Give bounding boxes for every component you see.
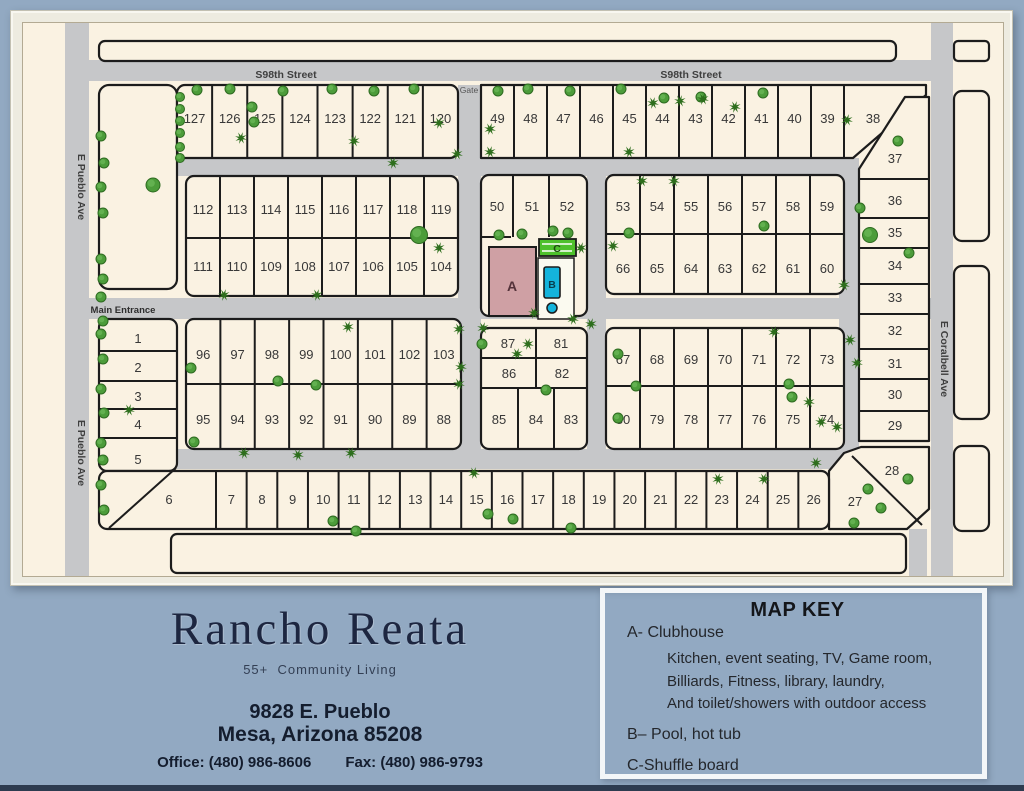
lot-106: 106 <box>362 259 384 274</box>
lot-127: 127 <box>184 111 206 126</box>
tree-bush-highlight <box>614 350 619 355</box>
tree-bush-highlight <box>148 180 155 187</box>
lot-117: 117 <box>363 202 384 217</box>
lot-60: 60 <box>820 261 834 276</box>
tree-bush-highlight <box>97 183 102 188</box>
lot-23: 23 <box>714 492 728 507</box>
lot-46: 46 <box>589 111 603 126</box>
lot-9: 9 <box>289 492 296 507</box>
tree-bush-highlight <box>478 340 483 345</box>
lot-96: 96 <box>196 347 210 362</box>
lot-108: 108 <box>294 259 316 274</box>
tree-bush-highlight <box>97 439 102 444</box>
lot-70: 70 <box>718 352 732 367</box>
tree-bush-highlight <box>614 414 619 419</box>
lot-16: 16 <box>500 492 514 507</box>
lot-40: 40 <box>787 111 801 126</box>
branding-block: Rancho Reata 55+ Community Living 9828 E… <box>60 602 580 771</box>
lot-14: 14 <box>439 492 453 507</box>
lot-88: 88 <box>437 412 451 427</box>
tree-bush-highlight <box>312 381 317 386</box>
lot-111: 111 <box>193 259 213 274</box>
lot-63: 63 <box>718 261 732 276</box>
tree-bush-highlight <box>567 524 572 529</box>
tree-bush-highlight <box>176 154 181 159</box>
tree-bush-highlight <box>97 385 102 390</box>
tree-bush-highlight <box>176 143 181 148</box>
tree-bush-highlight <box>518 230 523 235</box>
tree-bush-highlight <box>328 85 333 90</box>
lot-22: 22 <box>684 492 698 507</box>
lot-103: 103 <box>433 347 455 362</box>
tree-bush-highlight <box>352 527 357 532</box>
lot-73: 73 <box>820 352 834 367</box>
map-key-title: MAP KEY <box>627 599 968 622</box>
tree-bush-highlight <box>97 481 102 486</box>
tree-bush-highlight <box>850 519 855 524</box>
tree-bush-highlight <box>193 86 198 91</box>
tree-bush-highlight <box>370 87 375 92</box>
block-east-2 <box>954 266 989 419</box>
community-map-svg: 1271261251241231221211201121131141151161… <box>23 23 1003 576</box>
lot-21: 21 <box>653 492 667 507</box>
lot-43: 43 <box>688 111 702 126</box>
street-label-main-entrance: Main Entrance <box>91 305 156 316</box>
lot-5: 5 <box>134 452 141 467</box>
key-clubhouse-detail-line: And toilet/showers with outdoor access <box>667 693 968 716</box>
lot-3: 3 <box>134 389 141 404</box>
tree-bush-highlight <box>509 515 514 520</box>
tree-bush-highlight <box>495 231 500 236</box>
lot-98: 98 <box>265 347 279 362</box>
tree-bush-highlight <box>904 475 909 480</box>
lot-59: 59 <box>820 199 834 214</box>
block-northwest-green <box>99 85 177 289</box>
lot-118: 118 <box>397 202 418 217</box>
tree-bush-highlight <box>660 94 665 99</box>
office-phone: Office: (480) 986-8606 <box>157 754 311 771</box>
street-label-s98th-west: S98th Street <box>255 69 317 81</box>
lot-49: 49 <box>490 111 504 126</box>
clubhouse-label: A <box>507 278 517 294</box>
road-s98th-street <box>65 60 953 81</box>
lot-61: 61 <box>786 261 800 276</box>
road-ring-north <box>177 158 859 176</box>
tree-bush-highlight <box>856 204 861 209</box>
block-east-1 <box>954 91 989 241</box>
street-label-gate: Gate <box>460 85 479 95</box>
page: 1271261251241231221211201121131141151161… <box>0 0 1024 791</box>
lot-44: 44 <box>655 111 669 126</box>
key-item-pool: B– Pool, hot tub <box>627 726 968 744</box>
key-clubhouse-detail-line: Kitchen, event seating, TV, Game room, <box>667 648 968 671</box>
lot-18: 18 <box>561 492 575 507</box>
lot-30: 30 <box>888 387 902 402</box>
lot-84: 84 <box>529 412 543 427</box>
lot-78: 78 <box>684 412 698 427</box>
tree-bush-highlight <box>864 485 869 490</box>
lot-79: 79 <box>650 412 664 427</box>
tree-bush-highlight <box>905 249 910 254</box>
tree-bush-highlight <box>760 222 765 227</box>
lot-94: 94 <box>230 412 244 427</box>
lot-89: 89 <box>402 412 416 427</box>
shuffleboard-label: C <box>553 243 561 255</box>
block-north-strip-east <box>954 41 989 61</box>
lot-55: 55 <box>684 199 698 214</box>
block-67-80 <box>606 328 844 449</box>
hot-tub <box>547 303 557 313</box>
lot-69: 69 <box>684 352 698 367</box>
lot-20: 20 <box>623 492 637 507</box>
tree-bush-highlight <box>484 510 489 515</box>
tree-bush-highlight <box>176 129 181 134</box>
lot-119: 119 <box>431 202 452 217</box>
tree-bush-highlight <box>226 85 231 90</box>
street-label-coralbell: E Coralbell Ave <box>938 321 950 397</box>
lot-93: 93 <box>265 412 279 427</box>
tree-bush-highlight <box>632 382 637 387</box>
lot-7: 7 <box>228 492 235 507</box>
lot-77: 77 <box>718 412 732 427</box>
lot-28: 28 <box>885 463 899 478</box>
tree-bush-highlight <box>100 409 105 414</box>
community-subtitle: 55+ Community Living <box>60 662 580 677</box>
lot-27: 27 <box>848 494 862 509</box>
lot-45: 45 <box>622 111 636 126</box>
lot-115: 115 <box>295 202 316 217</box>
tree-bush-highlight <box>494 87 499 92</box>
lot-85: 85 <box>492 412 506 427</box>
lot-124: 124 <box>289 111 311 126</box>
tree-bush-highlight <box>97 255 102 260</box>
map-frame: 1271261251241231221211201121131141151161… <box>10 10 1013 586</box>
contact-line: Office: (480) 986-8606 Fax: (480) 986-97… <box>60 754 580 771</box>
tree-bush-highlight <box>99 317 104 322</box>
lot-33: 33 <box>888 290 902 305</box>
lot-38: 38 <box>866 111 880 126</box>
lot-53: 53 <box>616 199 630 214</box>
tree-bush-highlight <box>524 85 529 90</box>
lot-81: 81 <box>554 336 568 351</box>
lot-25: 25 <box>776 492 790 507</box>
tree-bush-highlight <box>97 293 102 298</box>
lot-8: 8 <box>258 492 265 507</box>
key-clubhouse-detail-line: Billiards, Fitness, library, laundry, <box>667 671 968 694</box>
tree-bush-highlight <box>864 229 872 237</box>
lot-24: 24 <box>745 492 759 507</box>
lot-17: 17 <box>531 492 545 507</box>
tree-bush-highlight <box>97 132 102 137</box>
lot-86: 86 <box>502 366 516 381</box>
lot-71: 71 <box>752 352 766 367</box>
road-center <box>587 158 606 469</box>
tree-bush-highlight <box>788 393 793 398</box>
lot-64: 64 <box>684 261 698 276</box>
lot-58: 58 <box>786 199 800 214</box>
lot-126: 126 <box>219 111 241 126</box>
lot-39: 39 <box>820 111 834 126</box>
street-label-s98th-east: S98th Street <box>660 69 722 81</box>
lot-66: 66 <box>616 261 630 276</box>
tree-bush-highlight <box>99 275 104 280</box>
lot-114: 114 <box>261 202 282 217</box>
lot-35: 35 <box>888 225 902 240</box>
lot-100: 100 <box>330 347 352 362</box>
tree-bush-highlight <box>759 89 764 94</box>
lot-57: 57 <box>752 199 766 214</box>
tree-bush-highlight <box>785 380 790 385</box>
lot-83: 83 <box>564 412 578 427</box>
lot-92: 92 <box>299 412 313 427</box>
lot-34: 34 <box>888 258 902 273</box>
lot-48: 48 <box>523 111 537 126</box>
lot-4: 4 <box>134 417 141 432</box>
tree-bush-highlight <box>877 504 882 509</box>
lot-101: 101 <box>364 347 386 362</box>
community-map: 1271261251241231221211201121131141151161… <box>22 22 1004 577</box>
lot-36: 36 <box>888 193 902 208</box>
lot-109: 109 <box>260 259 282 274</box>
tree-bush-highlight <box>279 87 284 92</box>
block-south-strip <box>171 534 906 573</box>
lot-72: 72 <box>786 352 800 367</box>
road-south-stub <box>909 529 927 576</box>
tree-bush-highlight <box>99 209 104 214</box>
road-coralbell-ave <box>931 23 953 576</box>
key-clubhouse-details: Kitchen, event seating, TV, Game room, B… <box>667 648 968 716</box>
tree-bush-highlight <box>190 438 195 443</box>
lot-116: 116 <box>329 202 350 217</box>
pool-label: B <box>548 279 556 291</box>
lot-31: 31 <box>888 356 902 371</box>
tree-bush-highlight <box>564 229 569 234</box>
lot-12: 12 <box>377 492 391 507</box>
lot-54: 54 <box>650 199 664 214</box>
lot-102: 102 <box>399 347 421 362</box>
lot-15: 15 <box>469 492 483 507</box>
lot-95: 95 <box>196 412 210 427</box>
lot-32: 32 <box>888 323 902 338</box>
lot-87: 87 <box>501 336 515 351</box>
fax-phone: Fax: (480) 986-9793 <box>345 754 483 771</box>
tree-bush-highlight <box>329 517 334 522</box>
lot-121: 121 <box>394 111 416 126</box>
tree-bush-highlight <box>410 85 415 90</box>
lot-123: 123 <box>324 111 346 126</box>
lot-37: 37 <box>888 151 902 166</box>
lot-65: 65 <box>650 261 664 276</box>
lot-122: 122 <box>359 111 381 126</box>
tree-bush-highlight <box>274 377 279 382</box>
lot-56: 56 <box>718 199 732 214</box>
lot-68: 68 <box>650 352 664 367</box>
tree-bush-highlight <box>100 159 105 164</box>
tree-bush-highlight <box>99 355 104 360</box>
lot-105: 105 <box>396 259 418 274</box>
lot-110: 110 <box>227 259 248 274</box>
lot-29: 29 <box>888 418 902 433</box>
key-item-shuffleboard: C-Shuffle board <box>627 757 968 775</box>
lot-50: 50 <box>490 199 504 214</box>
tree-bush-highlight <box>187 364 192 369</box>
address-line1: 9828 E. Pueblo <box>60 701 580 723</box>
lot-41: 41 <box>754 111 768 126</box>
tree-bush-highlight <box>412 228 421 237</box>
lot-112: 112 <box>193 202 214 217</box>
street-label-pueblo-south: E Pueblo Ave <box>75 420 87 486</box>
lot-10: 10 <box>316 492 330 507</box>
lot-90: 90 <box>368 412 382 427</box>
address-line2: Mesa, Arizona 85208 <box>60 723 580 747</box>
tree-bush-highlight <box>617 85 622 90</box>
lot-75: 75 <box>786 412 800 427</box>
lot-99: 99 <box>299 347 313 362</box>
lot-51: 51 <box>525 199 539 214</box>
tree-bush-highlight <box>248 103 253 108</box>
lot-107: 107 <box>328 259 350 274</box>
tree-bush-highlight <box>894 137 899 142</box>
block-east-3 <box>954 446 989 531</box>
bottom-edge <box>0 785 1024 791</box>
tree-bush-highlight <box>250 118 255 123</box>
street-label-pueblo-north: E Pueblo Ave <box>75 154 87 220</box>
tree-bush-highlight <box>176 93 181 98</box>
tree-bush-highlight <box>566 87 571 92</box>
block-north-strip <box>99 41 896 61</box>
key-item-clubhouse: A- Clubhouse <box>627 624 968 642</box>
map-key: MAP KEY A- Clubhouse Kitchen, event seat… <box>600 588 987 779</box>
lot-62: 62 <box>752 261 766 276</box>
lot-113: 113 <box>227 202 248 217</box>
lot-1: 1 <box>134 331 141 346</box>
lot-76: 76 <box>752 412 766 427</box>
tree-bush-highlight <box>100 506 105 511</box>
tree-bush-highlight <box>549 227 554 232</box>
lot-91: 91 <box>333 412 347 427</box>
lot-97: 97 <box>230 347 244 362</box>
lot-19: 19 <box>592 492 606 507</box>
lot-13: 13 <box>408 492 422 507</box>
lot-47: 47 <box>556 111 570 126</box>
tree-bush-highlight <box>99 456 104 461</box>
community-title: Rancho Reata <box>60 602 580 656</box>
tree-bush-highlight <box>176 117 181 122</box>
lot-11: 11 <box>347 492 361 507</box>
tree-bush-highlight <box>625 229 630 234</box>
lot-2: 2 <box>134 360 141 375</box>
lot-42: 42 <box>721 111 735 126</box>
lot-82: 82 <box>555 366 569 381</box>
lot-6: 6 <box>165 492 172 507</box>
lot-52: 52 <box>560 199 574 214</box>
lot-26: 26 <box>806 492 820 507</box>
tree-bush-highlight <box>176 105 181 110</box>
tree-bush-highlight <box>97 330 102 335</box>
lot-104: 104 <box>430 259 452 274</box>
road-ring-south <box>177 449 859 469</box>
tree-bush-highlight <box>542 386 547 391</box>
